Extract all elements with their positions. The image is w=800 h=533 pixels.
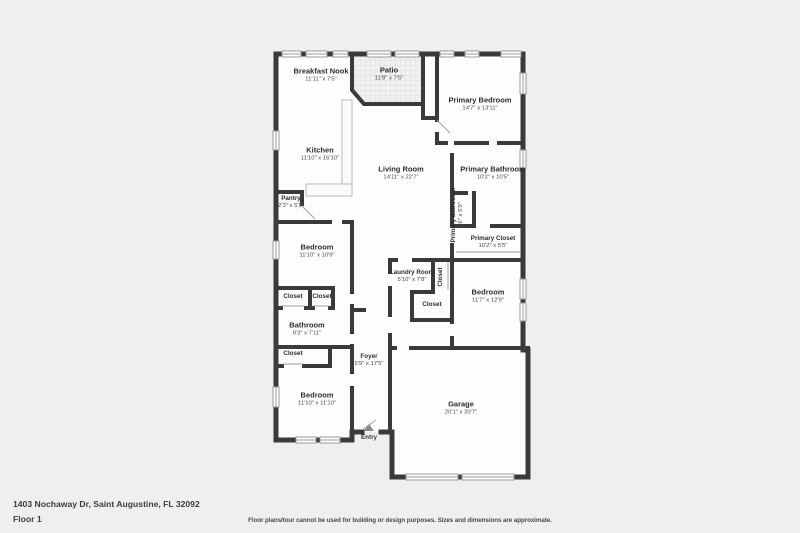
room-label-kitchen: Kitchen 11'10" x 16'10" [301, 145, 339, 162]
kitchen-counter [342, 100, 352, 188]
entry-label: Entry [361, 434, 377, 441]
house-floor [276, 54, 528, 477]
room-label-bedroom-2: Bedroom 11'10" x 10'9" [299, 242, 334, 259]
room-label-garage: Garage 20'1" x 20'7" [445, 399, 477, 416]
room-label-laundry-room: Laundry Room 5'10" x 7'8" [390, 269, 434, 285]
room-label-closet-hall: Closet [437, 267, 445, 286]
room-label-primary-bathroom-wc: Primary Bathroom 2'6" x 5'9" [450, 188, 466, 243]
room-label-primary-bedroom: Primary Bedroom 14'7" x 13'11" [449, 95, 512, 112]
room-label-bathroom: Bathroom 8'3" x 7'11" [289, 320, 324, 337]
floor-label: Floor 1 [13, 514, 42, 524]
room-label-closet-c: Closet [283, 350, 302, 358]
address-text: 1403 Nochaway Dr, Saint Augustine, FL 32… [13, 499, 200, 509]
room-label-primary-bathroom: Primary Bathroom 10'2" x 10'5" [460, 164, 525, 181]
room-label-primary-closet: Primary Closet 10'2" x 5'5" [471, 235, 515, 251]
room-label-pantry: Pantry 2'3" x 5'9" [278, 195, 304, 211]
room-label-patio: Patio 11'8" x 7'5" [375, 65, 404, 82]
room-label-living-room: Living Room 14'11" x 22'7" [378, 164, 423, 181]
room-label-closet-mid: Closet [422, 301, 441, 309]
room-label-bedroom-4: Bedroom 11'10" x 11'10" [298, 390, 336, 407]
floorplan-page: Breakfast Nook 11'11" x 7'5" Patio 11'8"… [0, 0, 800, 533]
room-label-foyer: Foyer 5'9" x 17'5" [354, 353, 383, 369]
room-label-closet-a: Closet [283, 293, 302, 301]
kitchen-peninsula [306, 184, 352, 196]
room-label-breakfast-nook: Breakfast Nook 11'11" x 7'5" [293, 66, 348, 83]
room-label-closet-b: Closet [312, 293, 331, 301]
room-label-bedroom-3: Bedroom 11'7" x 12'9" [472, 287, 505, 304]
disclaimer-text: Floor plans/tour cannot be used for buil… [248, 517, 552, 524]
